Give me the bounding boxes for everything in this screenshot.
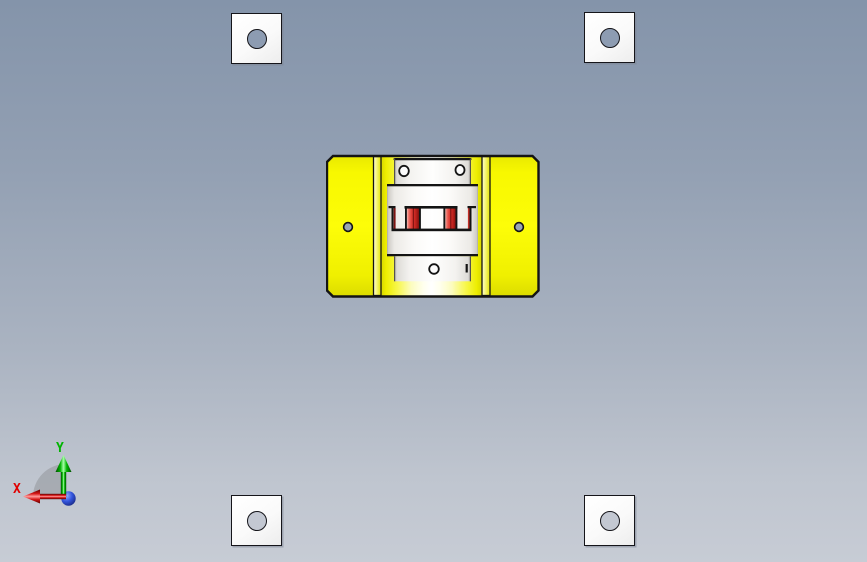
jaw-bottom-line <box>392 229 472 232</box>
corner-plate-hole <box>247 29 267 49</box>
jaw-wall <box>419 206 421 231</box>
jaw-wall <box>456 206 458 231</box>
left-rail[interactable] <box>374 157 382 296</box>
hub-bottom-hole <box>429 264 439 274</box>
right-wing-hole <box>515 223 524 232</box>
coupling-assembly[interactable] <box>326 154 540 300</box>
left-wing-hole <box>344 223 353 232</box>
spider-seam <box>413 208 414 229</box>
corner-plate-hole <box>247 511 267 531</box>
spider-seam <box>450 208 451 229</box>
hub-top-edge <box>394 158 472 160</box>
sleeve-bottom-line <box>387 254 478 256</box>
right-rail[interactable] <box>482 157 490 296</box>
x-axis-shaft <box>39 494 66 499</box>
hub-bottom-right-edge <box>470 256 471 281</box>
hub-top-hole-left <box>399 166 409 176</box>
y-axis-arrowhead <box>56 455 72 472</box>
jaw-wall <box>443 206 445 231</box>
jaw-wall <box>470 206 472 231</box>
hub-bottom-tick <box>466 264 468 273</box>
x-axis-arrowhead <box>23 490 40 504</box>
corner-plate-bottom-left[interactable] <box>231 495 282 546</box>
jaw-wall <box>405 206 407 231</box>
hub-top-right-edge <box>470 159 471 186</box>
jaw-wall <box>392 206 394 231</box>
x-axis-label: X <box>13 482 21 497</box>
hub-top-hole-right <box>456 165 465 175</box>
jaw-plateau-line <box>405 206 458 209</box>
corner-plate-top-right[interactable] <box>584 12 635 63</box>
corner-plate-hole <box>600 28 620 48</box>
jaw-tick-right <box>468 206 477 208</box>
hub-bottom-left-edge <box>394 256 395 281</box>
cad-viewport[interactable]: Y X <box>0 0 867 562</box>
corner-plate-top-left[interactable] <box>231 13 282 64</box>
y-axis-shaft <box>61 471 66 497</box>
origin-triad: Y X <box>6 434 86 516</box>
coupling-sleeve[interactable] <box>387 185 478 256</box>
corner-plate-bottom-right[interactable] <box>584 495 635 546</box>
sleeve-top-line <box>387 184 478 186</box>
hub-top-left-edge <box>394 159 395 186</box>
corner-plate-hole <box>600 511 620 531</box>
y-axis-label: Y <box>56 441 64 456</box>
jaw-tick-left <box>389 206 396 208</box>
spider-sliver-left <box>394 208 396 229</box>
